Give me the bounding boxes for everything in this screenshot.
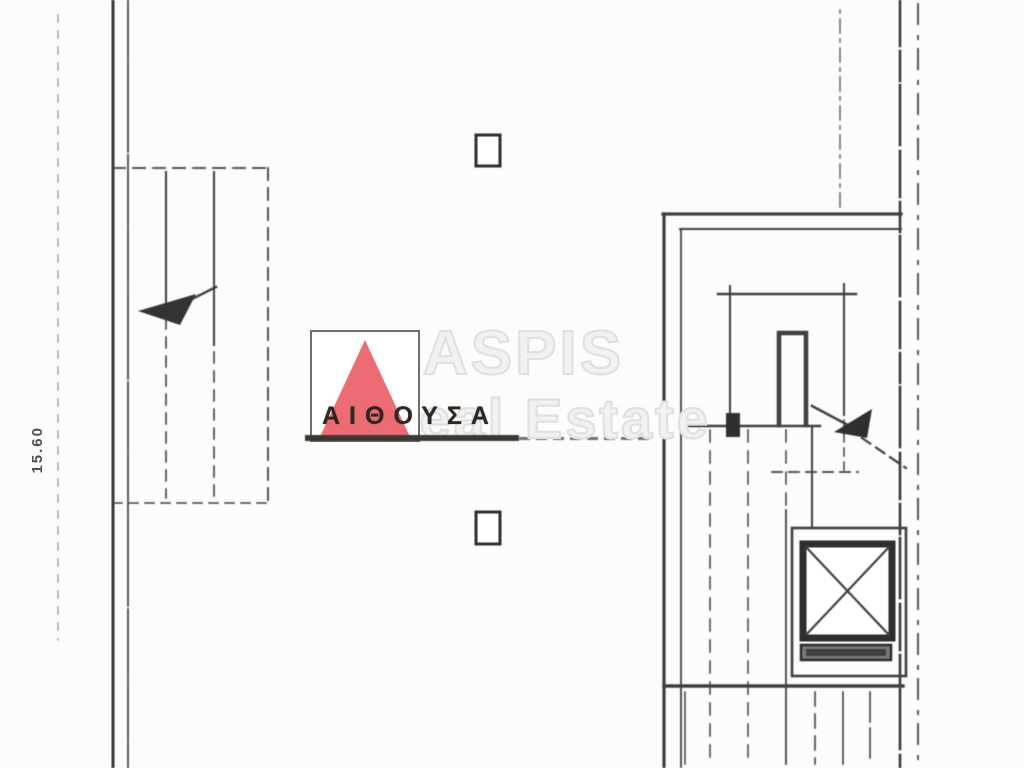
elevator-shaft — [792, 528, 906, 676]
staircase-left — [113, 168, 268, 505]
floor-plan-page: ASPIS Real Estate ΑΙΘΟΥΣΑ 15.60 — [0, 0, 1024, 768]
room-label: ΑΙΘΟΥΣΑ — [322, 402, 498, 431]
right-room-walls — [663, 214, 903, 768]
stairs-direction-arrow-icon — [812, 406, 906, 468]
column-bottom — [476, 512, 500, 544]
watermark-aspis: ASPIS — [423, 318, 624, 389]
left-wall — [113, 0, 128, 768]
stairs-down-arrow-icon — [138, 287, 216, 325]
lower-stair-lines — [685, 692, 870, 764]
room-label-underline — [305, 435, 519, 441]
column-top — [476, 135, 500, 166]
right-room-interior — [681, 284, 858, 764]
dimension-label: 15.60 — [26, 402, 48, 498]
